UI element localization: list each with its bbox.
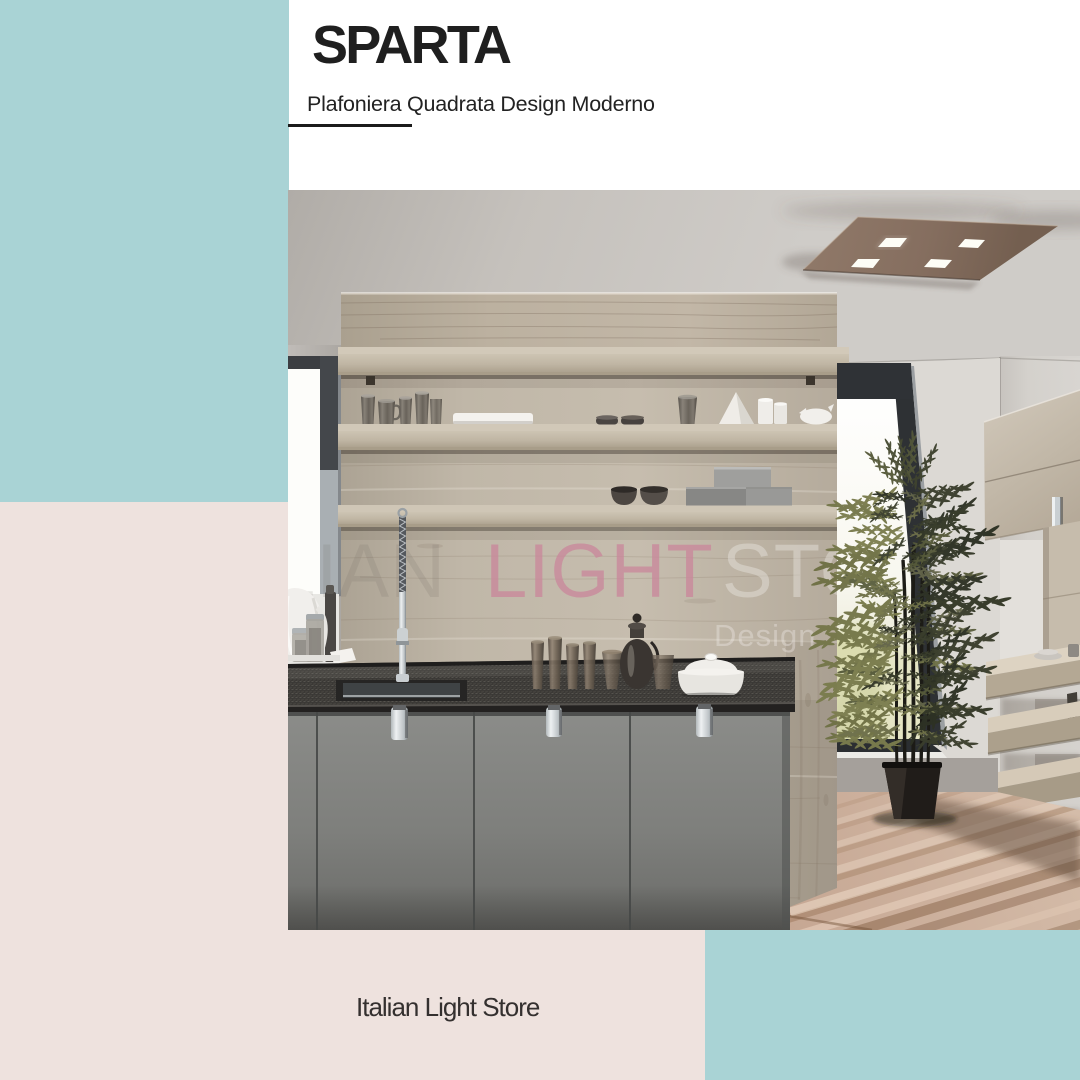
svg-text:Design: Design (714, 618, 817, 653)
svg-text:LIGHT: LIGHT (485, 529, 714, 614)
